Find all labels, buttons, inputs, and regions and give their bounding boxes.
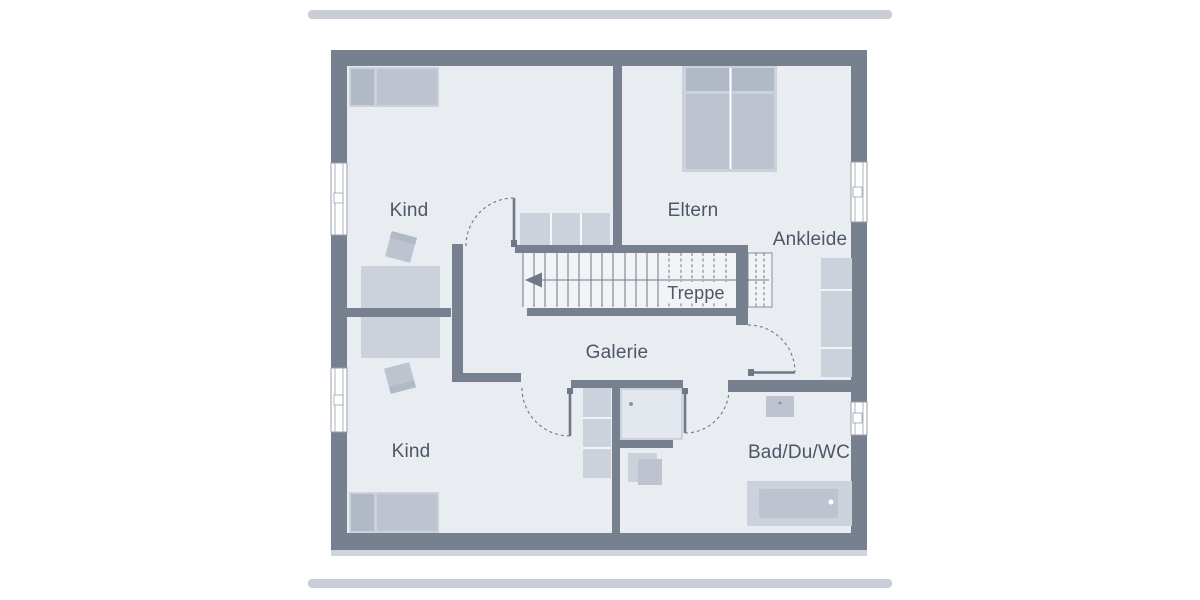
floor-plan-page: Kind Eltern Ankleide Treppe Galerie Kind… xyxy=(0,0,1200,600)
bathtub-symbol xyxy=(747,481,852,526)
desk-symbol-bottom xyxy=(361,317,440,358)
wardrobe-symbol-kind xyxy=(583,388,611,478)
window-left-lower xyxy=(331,368,347,432)
label-bad: Bad/Du/WC xyxy=(748,442,850,463)
label-treppe: Treppe xyxy=(667,283,725,303)
label-ankleide: Ankleide xyxy=(773,229,847,250)
window-left-upper xyxy=(331,163,347,235)
top-divider-bar xyxy=(308,10,892,19)
window-right-lower xyxy=(851,402,867,435)
staircase xyxy=(523,253,772,308)
sideboard-symbol xyxy=(520,213,610,245)
wardrobe-symbol-ankleide xyxy=(821,258,852,377)
washbasin-symbol-double xyxy=(628,453,662,485)
label-kind-top: Kind xyxy=(390,200,429,221)
label-kind-bottom: Kind xyxy=(392,441,431,462)
washbasin-symbol-small xyxy=(766,396,794,417)
single-bed-symbol-bottom xyxy=(349,492,439,533)
desk-symbol-top xyxy=(361,266,440,308)
double-bed-symbol xyxy=(682,66,777,172)
floor-plan: Kind Eltern Ankleide Treppe Galerie Kind… xyxy=(0,0,1200,600)
label-galerie: Galerie xyxy=(586,342,649,363)
single-bed-symbol-top xyxy=(349,67,439,107)
bottom-divider-bar xyxy=(308,579,892,588)
window-right-upper xyxy=(851,162,867,222)
building-shadow xyxy=(331,550,867,556)
shower-symbol xyxy=(621,389,682,439)
label-eltern: Eltern xyxy=(668,200,719,221)
